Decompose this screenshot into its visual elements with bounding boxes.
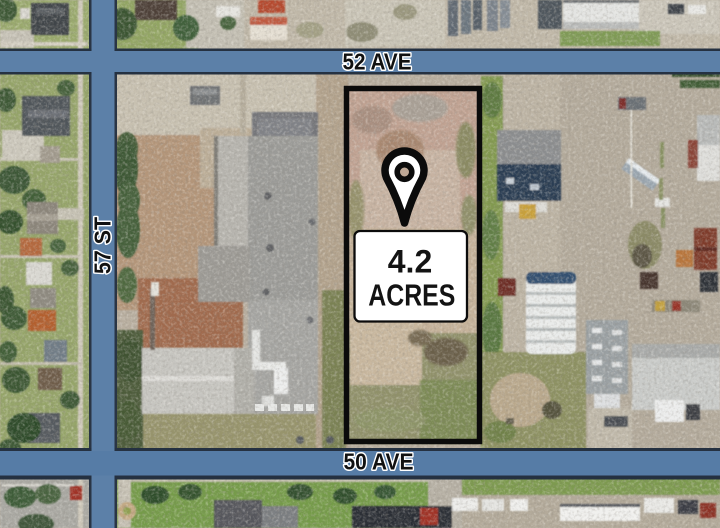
svg-text:4.2: 4.2 [388, 244, 432, 280]
svg-text:ACRES: ACRES [368, 278, 455, 313]
svg-text:52 AVE: 52 AVE [343, 49, 412, 75]
svg-text:57 ST: 57 ST [90, 217, 116, 274]
svg-text:50 AVE: 50 AVE [344, 449, 414, 475]
